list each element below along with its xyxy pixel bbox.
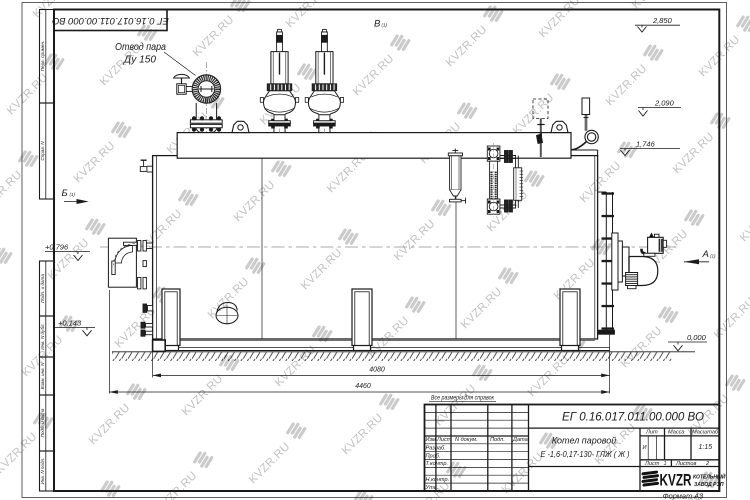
- svg-text:(1): (1): [382, 23, 388, 28]
- svg-text:ЕГ 0.16.017.011.00.000 ВО: ЕГ 0.16.017.011.00.000 ВО: [562, 412, 704, 424]
- svg-text:Лит: Лит: [645, 430, 658, 436]
- svg-text:Проб.: Проб.: [426, 453, 441, 459]
- svg-text:Все размеры для справок: Все размеры для справок: [431, 394, 495, 402]
- svg-text:Утв.: Утв.: [425, 485, 439, 491]
- svg-text:0,000: 0,000: [687, 333, 707, 342]
- svg-text:Взам. инв. N: Взам. инв. N: [40, 362, 45, 389]
- svg-text:Н.контр.: Н.контр.: [426, 477, 450, 483]
- svg-text:Е -1,6-0,17-130- ГЛЖ ( Ж ): Е -1,6-0,17-130- ГЛЖ ( Ж ): [541, 449, 630, 459]
- svg-text:ЕГ 0.16.017.011.00.000 ВО: ЕГ 0.16.017.011.00.000 ВО: [52, 15, 169, 26]
- svg-text:А: А: [702, 249, 709, 260]
- svg-text:1: 1: [664, 461, 667, 467]
- svg-text:Формат А3: Формат А3: [663, 492, 704, 500]
- svg-text:Отвод пара: Отвод пара: [115, 42, 166, 53]
- svg-text:N докум.: N докум.: [455, 437, 478, 443]
- svg-text:Подп. и дата: Подп. и дата: [40, 274, 45, 303]
- svg-text:Изм: Изм: [426, 437, 437, 443]
- svg-text:Котел паровой: Котел паровой: [552, 436, 617, 446]
- svg-text:Дата: Дата: [512, 437, 528, 443]
- svg-text:KVZR: KVZR: [660, 472, 692, 490]
- svg-text:Листов: Листов: [675, 461, 696, 467]
- svg-text:И: И: [643, 445, 647, 451]
- svg-text:Ду 150: Ду 150: [123, 55, 156, 66]
- svg-text:Лист: Лист: [436, 437, 452, 443]
- svg-text:Подп. и дата: Подп. и дата: [40, 408, 45, 437]
- svg-text:Масса: Масса: [668, 430, 685, 436]
- svg-text:Разраб.: Разраб.: [426, 446, 446, 452]
- svg-text:ЗАВОД РЭП: ЗАВОД РЭП: [694, 482, 724, 488]
- svg-text:КОТЕЛЬНЫЙ: КОТЕЛЬНЫЙ: [693, 473, 726, 481]
- svg-text:+0,796: +0,796: [45, 243, 69, 252]
- svg-text:+0,143: +0,143: [58, 319, 82, 328]
- svg-text:Масштаб: Масштаб: [692, 430, 719, 436]
- svg-text:Инв. N дубл.: Инв. N дубл.: [40, 323, 45, 350]
- svg-text:Инв. N подл.: Инв. N подл.: [40, 458, 45, 485]
- svg-text:Б: Б: [62, 188, 68, 199]
- svg-text:1:15: 1:15: [699, 444, 713, 451]
- svg-text:1,746: 1,746: [636, 140, 656, 149]
- svg-text:4460: 4460: [355, 383, 371, 390]
- svg-text:(1): (1): [70, 192, 76, 197]
- svg-text:Подп.: Подп.: [490, 437, 505, 443]
- svg-text:В: В: [374, 19, 381, 30]
- svg-text:2,090: 2,090: [654, 99, 675, 108]
- svg-text:4080: 4080: [369, 367, 385, 374]
- svg-text:(1): (1): [710, 254, 716, 259]
- svg-text:2,850: 2,850: [652, 16, 673, 25]
- svg-text:Справ. N: Справ. N: [40, 141, 45, 161]
- svg-text:Перв. примен.: Перв. примен.: [40, 41, 45, 72]
- svg-text:Т.контр.: Т.контр.: [426, 461, 449, 467]
- svg-text:Лист: Лист: [644, 461, 660, 467]
